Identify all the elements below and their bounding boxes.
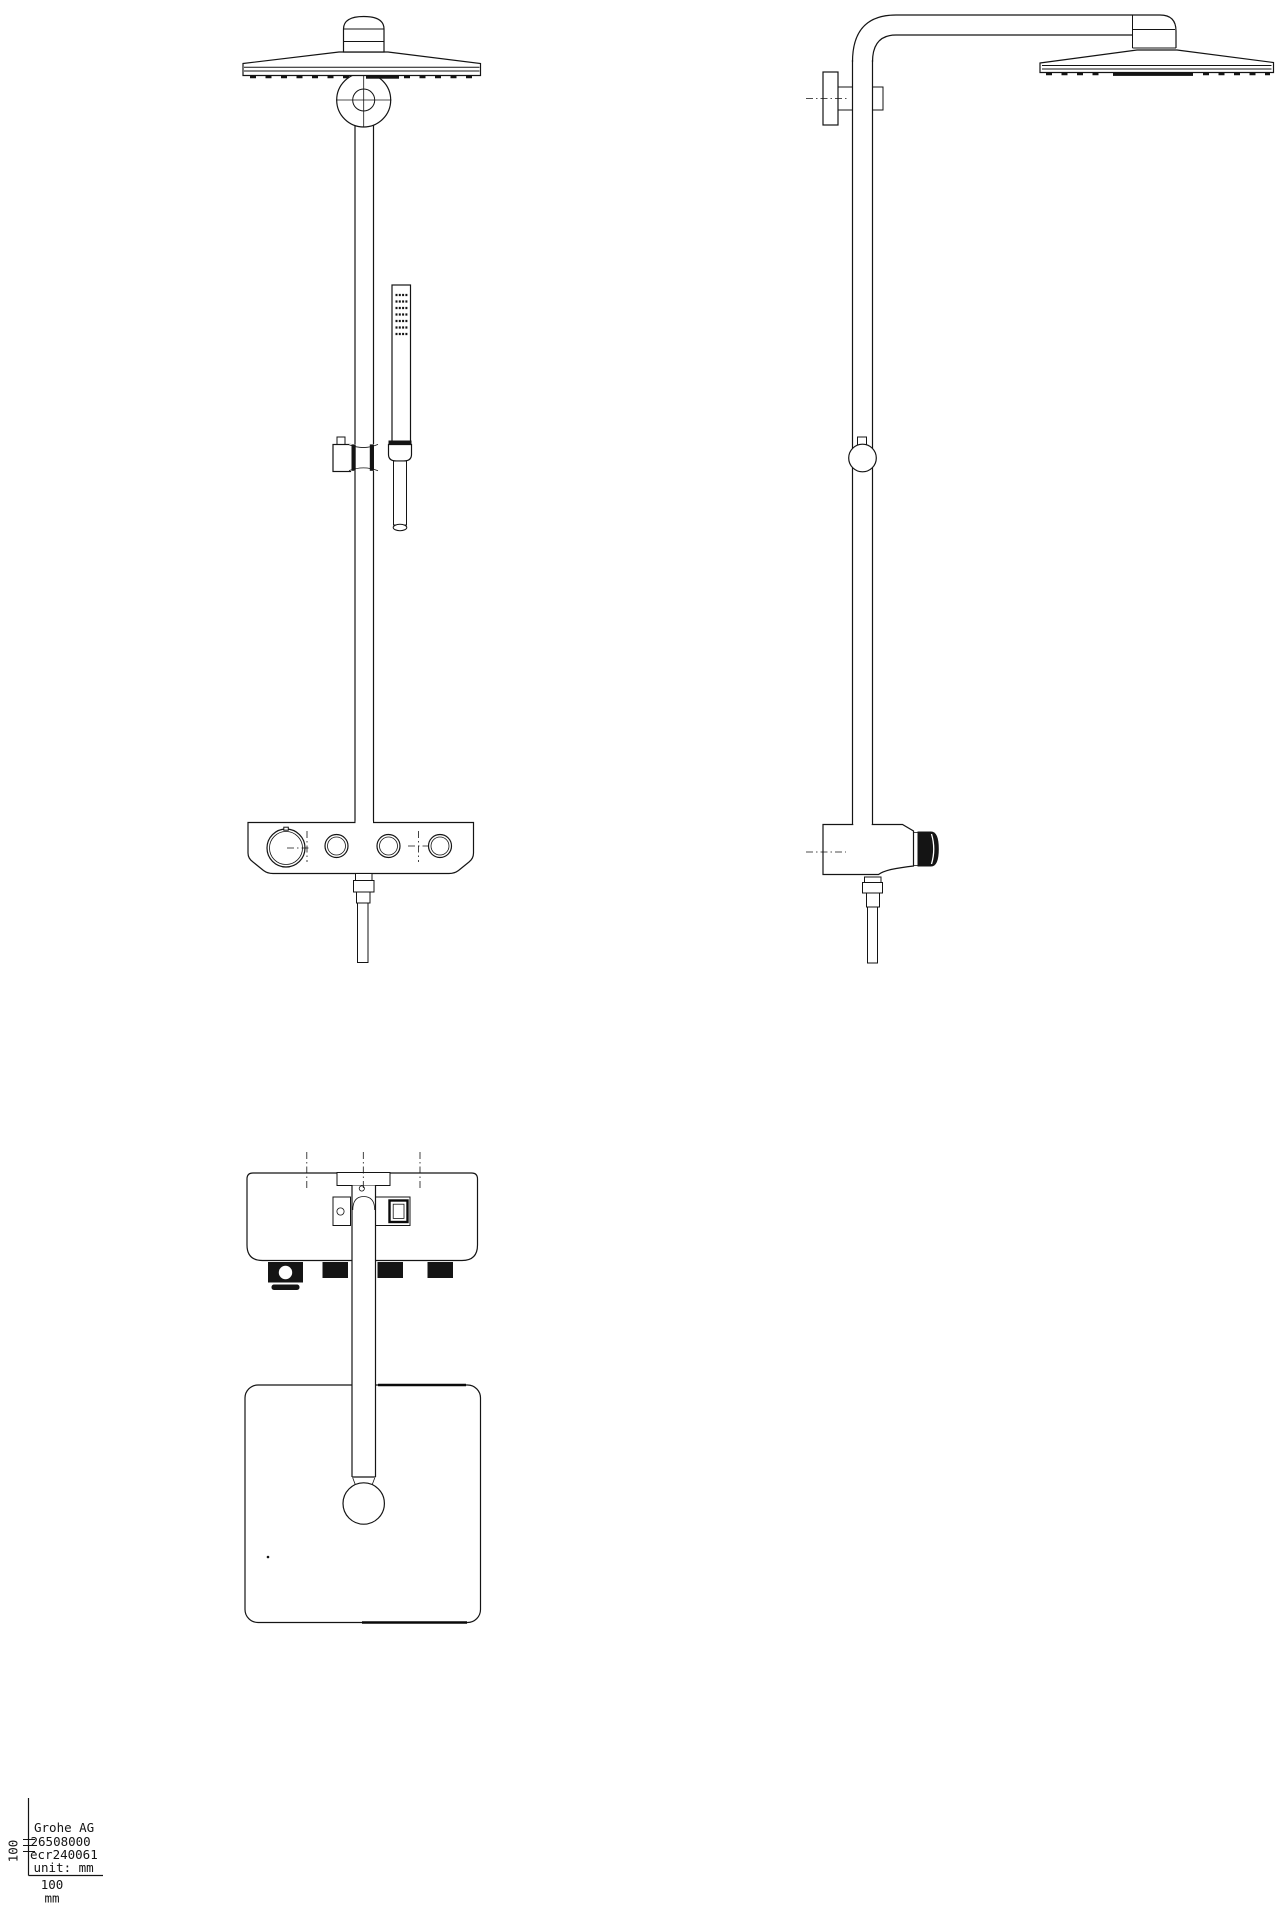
nozzle-dot bbox=[267, 1556, 270, 1559]
scale-y-value: 100 bbox=[6, 1840, 21, 1863]
hand-shower-front bbox=[392, 285, 411, 445]
ball-joint-bottom bbox=[343, 1483, 384, 1524]
holder-block-right-bottom bbox=[376, 1197, 411, 1226]
unit-note: unit: mm bbox=[34, 1860, 94, 1875]
scale-x-unit: mm bbox=[44, 1891, 59, 1906]
control-panel-front bbox=[248, 821, 474, 874]
head-shower-front bbox=[243, 17, 481, 79]
technical-drawing: Grohe AG 26508000 ecr240061 unit: mm 100… bbox=[0, 0, 1285, 1920]
side-view bbox=[806, 15, 1274, 963]
spray-knob-3-front bbox=[429, 835, 452, 858]
spray-knob-1-front bbox=[325, 835, 348, 858]
holder-block-left-bottom bbox=[333, 1197, 351, 1226]
head-shower-cap-front bbox=[344, 17, 385, 53]
head-nozzles-side bbox=[1046, 73, 1270, 76]
title-block: Grohe AG 26508000 ecr240061 unit: mm 100… bbox=[6, 1798, 104, 1906]
drawing-page: Grohe AG 26508000 ecr240061 unit: mm 100… bbox=[0, 0, 1285, 1920]
temperature-knob-side bbox=[918, 832, 939, 867]
company-name: Grohe AG bbox=[34, 1820, 94, 1835]
head-shower-side bbox=[1040, 50, 1274, 76]
spray-knob-2-bottom bbox=[378, 1262, 404, 1278]
spray-knob-3-bottom bbox=[428, 1262, 454, 1278]
spray-knob-2-front bbox=[377, 835, 400, 858]
hand-shower-handle-front bbox=[393, 461, 407, 531]
hose-outlet-side bbox=[863, 877, 883, 963]
front-view bbox=[243, 17, 481, 963]
temperature-knob-bottom bbox=[268, 1262, 303, 1290]
riser-pipe-side bbox=[853, 15, 1177, 825]
hose-outlet-front bbox=[354, 874, 375, 963]
control-body-side bbox=[806, 823, 939, 875]
bottom-view bbox=[245, 1152, 481, 1623]
spray-knob-1-bottom bbox=[323, 1262, 349, 1278]
